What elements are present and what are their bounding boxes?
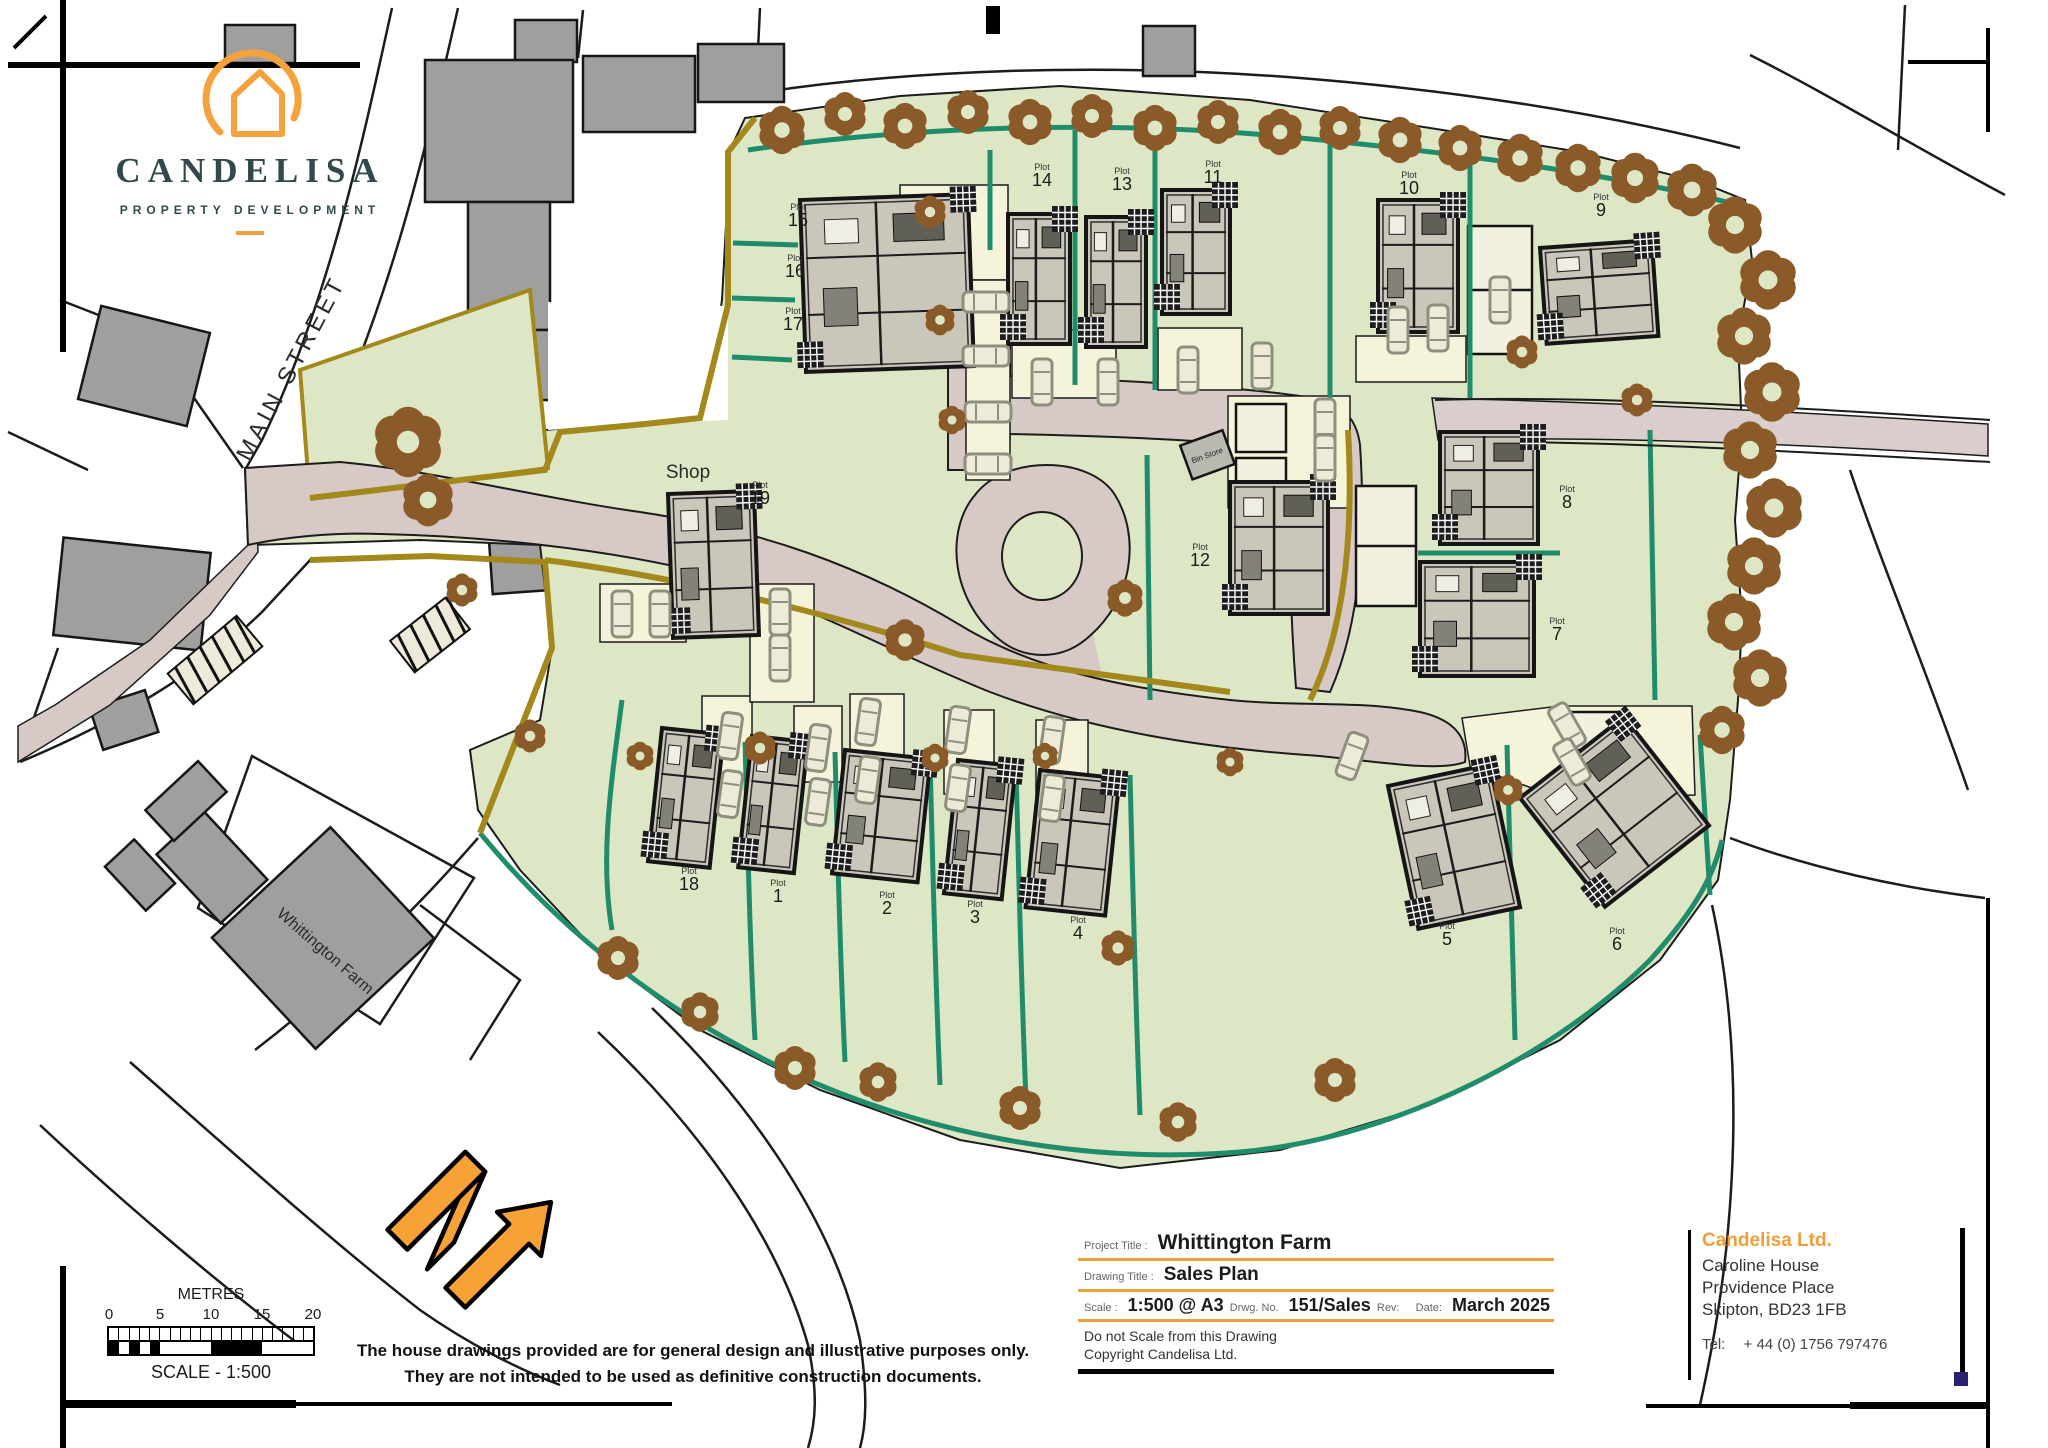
date-value: March 2025 <box>1452 1295 1550 1316</box>
plot-number-6: 6 <box>1612 934 1622 954</box>
plot-number-3: 3 <box>970 907 980 927</box>
car-icon <box>945 764 971 812</box>
telephone-label: Tel: <box>1702 1336 1725 1353</box>
brand-logo: CANDELISA PROPERTY DEVELOPMENT <box>58 38 442 235</box>
drawing-sheet: MAIN STREET Shop Whittington Farm Bin St… <box>0 0 2048 1448</box>
car-icon <box>945 706 971 754</box>
tree-icon <box>1746 478 1802 537</box>
company-address-1: Caroline House <box>1702 1255 1952 1277</box>
car-icon <box>1039 774 1065 822</box>
car-icon <box>1490 277 1510 323</box>
plot-number-14: 14 <box>1032 170 1052 190</box>
shop-label: Shop <box>666 462 710 483</box>
north-arrow-icon <box>388 1134 573 1319</box>
car-icon <box>770 589 790 635</box>
car-icon <box>963 346 1009 366</box>
scale-caption: SCALE - 1:500 <box>86 1362 336 1383</box>
car-icon <box>805 724 831 772</box>
plot-number-16: 16 <box>785 261 805 281</box>
company-address-2: Providence Place <box>1702 1277 1952 1299</box>
scale-bar-rule <box>107 1326 315 1356</box>
title-block-project-row: Project Title : Whittington Farm <box>1078 1228 1554 1261</box>
plot-number-4: 4 <box>1073 923 1083 943</box>
car-icon <box>963 292 1009 312</box>
house-footprint-plot-14 <box>1000 206 1078 344</box>
plot-number-10: 10 <box>1399 178 1419 198</box>
telephone-value: + 44 (0) 1756 797476 <box>1744 1336 1888 1353</box>
plot-number-8: 8 <box>1562 492 1572 512</box>
car-icon <box>855 756 881 804</box>
scale-tick-10: 10 <box>203 1306 220 1323</box>
title-block-notes: Do not Scale from this Drawing Copyright… <box>1078 1322 1554 1369</box>
registration-mark <box>1954 1372 1968 1386</box>
car-icon <box>1315 435 1335 481</box>
car-icon <box>770 635 790 681</box>
company-name: Candelisa Ltd. <box>1702 1230 1952 1252</box>
car-icon <box>612 591 632 637</box>
plot-number-17: 17 <box>783 314 803 334</box>
scale-tick-15: 15 <box>254 1306 271 1323</box>
drwg-no-label: Drwg. No. <box>1230 1302 1279 1314</box>
car-icon <box>717 770 743 818</box>
plot-number-11: 11 <box>1204 167 1223 187</box>
tree-icon <box>1733 649 1786 706</box>
title-block-drawing-row: Drawing Title : Sales Plan <box>1078 1261 1554 1292</box>
date-label: Date: <box>1416 1302 1442 1314</box>
brand-name: CANDELISA <box>58 151 442 191</box>
loop-island <box>1002 512 1082 600</box>
plot-number-15: 15 <box>788 210 808 230</box>
scale-value: 1:500 @ A3 <box>1128 1295 1224 1316</box>
car-icon <box>1428 305 1448 351</box>
house-footprint-plot-12 <box>1222 474 1336 614</box>
scale-tick-0: 0 <box>105 1306 113 1323</box>
tree-icon <box>447 574 478 607</box>
drwg-no-value: 151/Sales <box>1289 1295 1371 1316</box>
scale-bar-numbers: 0 5 10 15 20 <box>109 1306 313 1324</box>
car-icon <box>855 698 881 746</box>
plot-number-13: 13 <box>1112 174 1132 194</box>
car-icon <box>805 778 831 826</box>
house-footprint-plot-15 <box>792 186 982 372</box>
house-footprint-plot-13 <box>1078 209 1154 347</box>
house-footprint-plot-8 <box>1432 424 1546 544</box>
title-block-bottom-rule <box>1078 1369 1554 1374</box>
drawing-title-label: Drawing Title : <box>1084 1271 1154 1283</box>
scale-label: Scale : <box>1084 1302 1118 1314</box>
company-telephone: Tel: + 44 (0) 1756 797476 <box>1702 1336 1952 1353</box>
disclaimer-line-2: They are not intended to be used as defi… <box>340 1364 1046 1390</box>
brand-dash <box>236 231 264 235</box>
house-footprint-plot-9 <box>1531 232 1666 345</box>
hatched-crossings <box>168 596 472 704</box>
scale-bar: METRES 0 5 10 15 20 SCALE - 1:500 <box>86 1286 336 1383</box>
scale-tick-5: 5 <box>156 1306 164 1323</box>
plot-number-7: 7 <box>1552 624 1562 644</box>
disclaimer-note: The house drawings provided are for gene… <box>340 1338 1046 1389</box>
car-icon <box>1178 347 1198 393</box>
title-block-meta-row: Scale : 1:500 @ A3 Drwg. No. 151/Sales R… <box>1078 1292 1554 1322</box>
car-icon <box>1388 307 1408 353</box>
drawing-title-value: Sales Plan <box>1164 1264 1259 1286</box>
brand-tagline: PROPERTY DEVELOPMENT <box>58 203 442 217</box>
rev-label: Rev: <box>1377 1302 1400 1314</box>
plot-number-12: 12 <box>1190 550 1210 570</box>
scale-tick-20: 20 <box>305 1306 322 1323</box>
disclaimer-line-1: The house drawings provided are for gene… <box>340 1338 1046 1364</box>
plot-number-19: 19 <box>750 488 770 508</box>
plot-number-9: 9 <box>1596 200 1606 220</box>
note-copyright: Copyright Candelisa Ltd. <box>1084 1345 1548 1363</box>
project-title-label: Project Title : <box>1084 1240 1148 1252</box>
plot-number-5: 5 <box>1442 929 1452 949</box>
scale-bar-unit: METRES <box>86 1286 336 1304</box>
car-icon <box>717 712 743 760</box>
note-do-not-scale: Do not Scale from this Drawing <box>1084 1327 1548 1345</box>
plot-number-2: 2 <box>882 898 892 918</box>
car-icon <box>1252 343 1272 389</box>
title-block: Project Title : Whittington Farm Drawing… <box>1078 1228 1554 1374</box>
car-icon <box>1098 359 1118 405</box>
house-arc-icon <box>185 38 315 142</box>
company-address-3: Skipton, BD23 1FB <box>1702 1299 1952 1321</box>
car-icon <box>1032 359 1052 405</box>
car-icon <box>650 591 670 637</box>
car-icon <box>965 454 1011 474</box>
house-footprint-plot-11 <box>1154 182 1238 314</box>
house-footprint-plot-10 <box>1370 192 1466 332</box>
plot-number-1: 1 <box>773 886 783 906</box>
plot-number-18: 18 <box>679 874 699 894</box>
house-footprint-plot-7 <box>1412 554 1542 676</box>
car-icon <box>965 402 1011 422</box>
company-panel: Candelisa Ltd. Caroline House Providence… <box>1702 1230 1952 1353</box>
title-block-divider <box>1688 1230 1691 1380</box>
project-title-value: Whittington Farm <box>1158 1231 1332 1255</box>
